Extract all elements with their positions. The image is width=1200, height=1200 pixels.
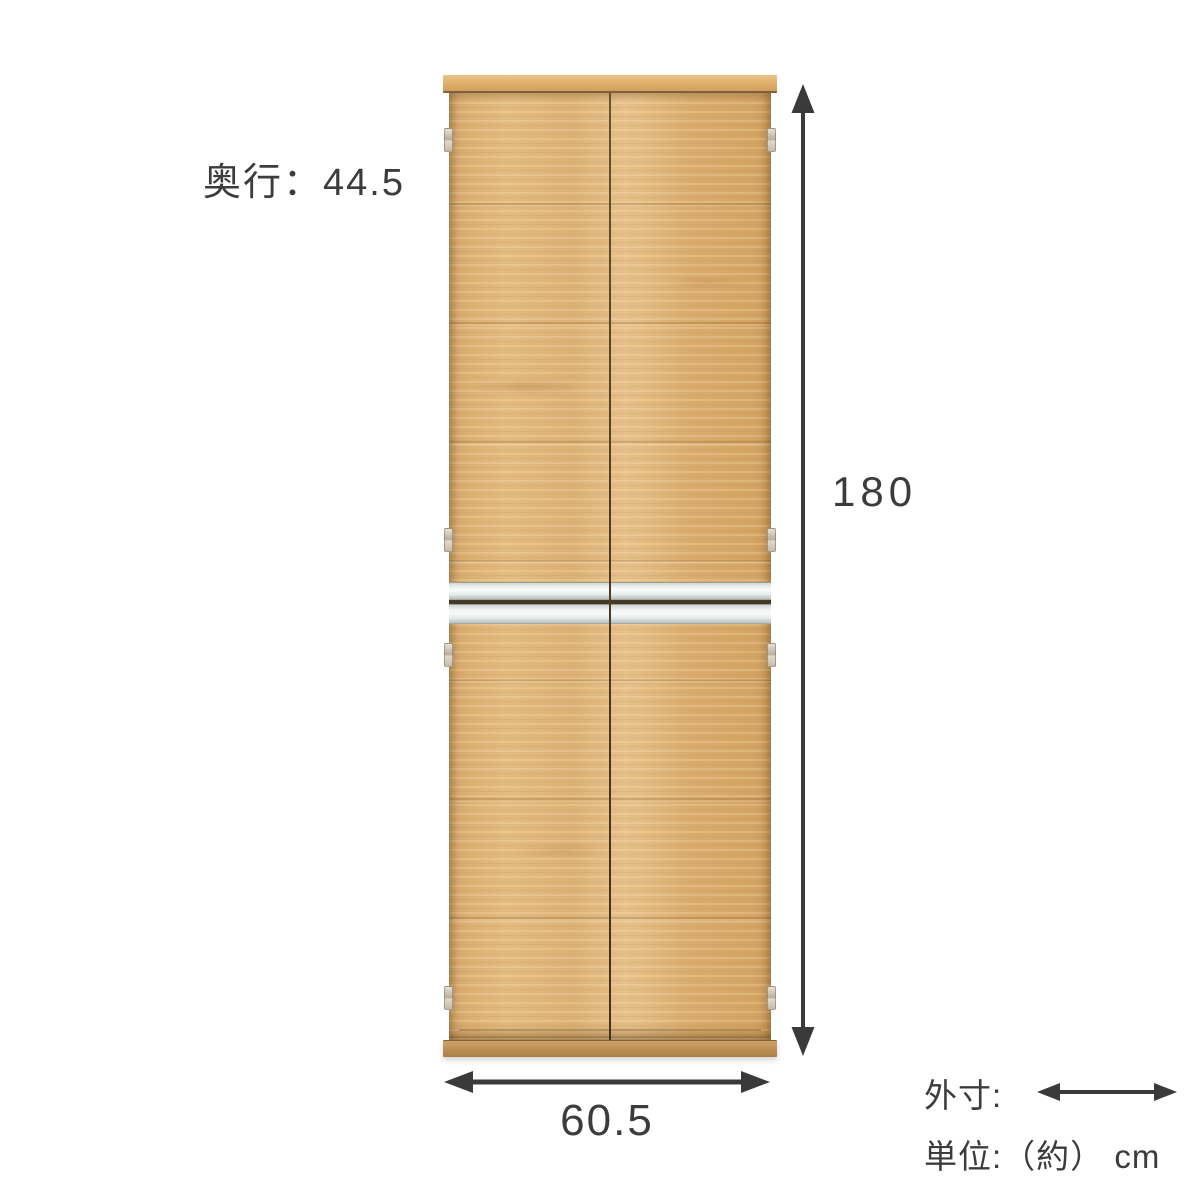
hinge-icon [767,128,776,152]
legend-unit-label: 単位:（約） cm [924,1130,1160,1178]
cabinet-base-board [443,1040,777,1057]
hinge-icon [444,128,453,152]
hinge-icon [767,986,776,1010]
product-dimension-diagram: 奥行：44.5 180 60.5 外寸: [0,0,1200,1200]
legend-dimension-arrow-icon [1036,1081,1178,1103]
hinge-icon [767,643,776,667]
hinge-icon [444,528,453,552]
cabinet-top-board [443,75,777,93]
height-dimension-value: 180 [832,468,917,516]
door-center-gap [609,93,611,1040]
cabinet-doors [449,93,771,1040]
width-dimension-value: 60.5 [443,1096,771,1146]
depth-dimension-label: 奥行：44.5 [203,151,405,206]
width-dimension-arrow-icon [443,1068,771,1096]
hinge-icon [444,986,453,1010]
height-dimension-arrow-icon [790,83,816,1057]
hinge-icon [444,643,453,667]
hinge-icon [767,528,776,552]
legend-outer-dimension-label: 外寸: [924,1069,1002,1117]
cabinet [443,75,777,1057]
